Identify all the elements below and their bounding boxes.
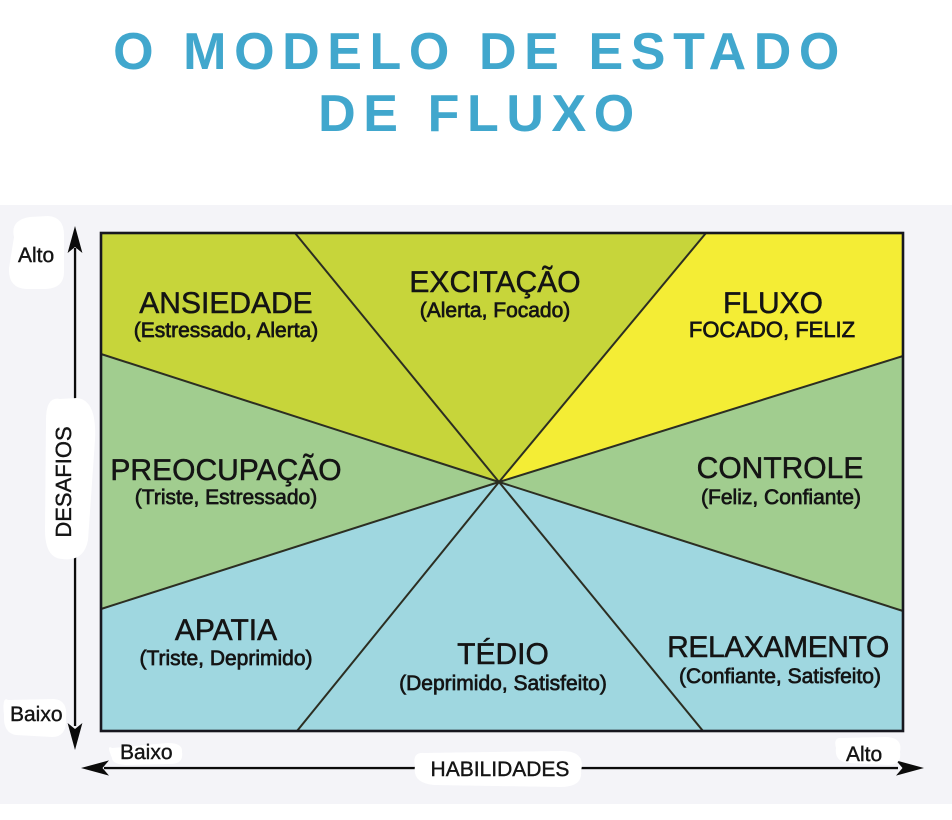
svg-text:FLUXO: FLUXO (723, 287, 823, 320)
svg-text:Baixo: Baixo (10, 703, 63, 726)
svg-text:RELAXAMENTO: RELAXAMENTO (667, 631, 889, 664)
svg-text:APATIA: APATIA (175, 614, 277, 647)
svg-text:TÉDIO: TÉDIO (457, 637, 549, 671)
svg-text:(Estressado, Alerta): (Estressado, Alerta) (134, 319, 318, 342)
svg-text:(Alerta, Focado): (Alerta, Focado) (420, 299, 571, 322)
svg-text:EXCITAÇÃO: EXCITAÇÃO (409, 265, 580, 299)
svg-text:Baixo: Baixo (120, 741, 173, 764)
svg-text:(Triste, Deprimido): (Triste, Deprimido) (139, 647, 312, 670)
svg-text:CONTROLE: CONTROLE (697, 452, 864, 485)
svg-text:PREOCUPAÇÃO: PREOCUPAÇÃO (110, 453, 341, 487)
svg-text:(Confiante, Satisfeito): (Confiante, Satisfeito) (679, 665, 881, 688)
svg-text:HABILIDADES: HABILIDADES (431, 758, 570, 781)
svg-text:(Feliz, Confiante): (Feliz, Confiante) (701, 486, 861, 509)
svg-text:(Deprimido, Satisfeito): (Deprimido, Satisfeito) (399, 672, 607, 695)
svg-text:ANSIEDADE: ANSIEDADE (139, 287, 312, 320)
svg-text:Alto: Alto (18, 244, 54, 267)
svg-text:(Triste, Estressado): (Triste, Estressado) (135, 486, 317, 509)
svg-text:FOCADO, FELIZ: FOCADO, FELIZ (689, 317, 855, 342)
svg-text:DESAFIOS: DESAFIOS (51, 426, 76, 537)
svg-text:Alto: Alto (846, 743, 882, 766)
